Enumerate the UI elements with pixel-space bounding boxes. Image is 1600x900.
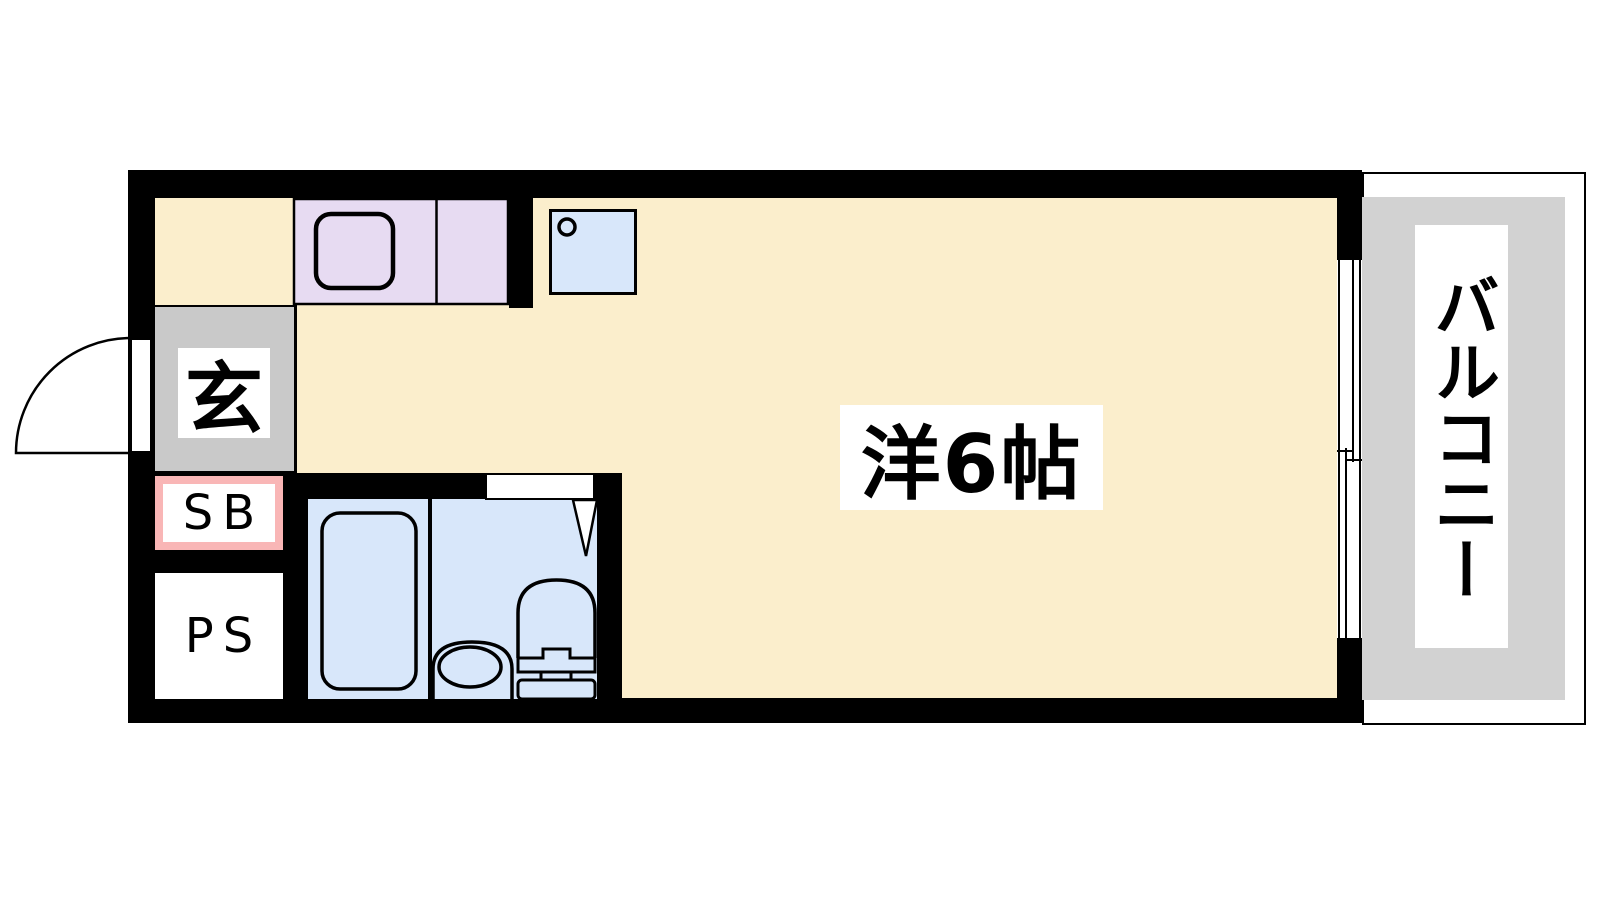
pipe-space: PS	[155, 573, 283, 699]
entry-door-swing-arc	[16, 338, 131, 453]
shoe-box: SB	[155, 476, 283, 550]
main-room-label: 洋6帖	[840, 405, 1103, 510]
balcony-label: バルコニー	[1415, 225, 1508, 648]
entry-door-leaf	[130, 338, 152, 453]
washer-pan	[549, 209, 637, 295]
sliding-window	[1337, 260, 1362, 638]
bathroom-area	[308, 499, 597, 699]
kitchen-wall-stub	[509, 170, 533, 308]
floor-plan: SB PS 玄 洋6帖 バルコニー	[0, 0, 1600, 900]
shoe-box-label: SB	[163, 484, 275, 542]
kitchen-counter	[293, 198, 509, 305]
bathroom-door-opening	[485, 473, 595, 500]
entrance-label: 玄	[178, 348, 270, 438]
